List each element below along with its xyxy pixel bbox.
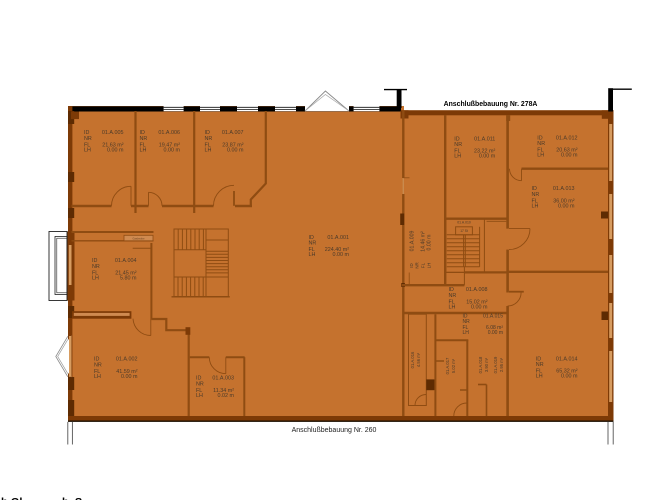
svg-text:01.A.009: 01.A.009 [410,231,416,252]
svg-text:0.00 m: 0.00 m [164,147,181,153]
svg-text:Anschlußbebauung Nr. 260: Anschlußbebauung Nr. 260 [292,427,377,434]
svg-text:NR: NR [536,362,544,368]
svg-text:LH: LH [309,252,316,258]
svg-text:LH: LH [427,263,432,269]
svg-text:NR: NR [205,136,213,142]
svg-text:LH: LH [205,147,212,153]
svg-text:01.A.008: 01.A.008 [466,287,488,293]
svg-text:NR: NR [309,241,317,247]
svg-text:0.00 m: 0.00 m [561,374,578,380]
svg-text:b. S: b. S [62,497,82,500]
svg-text:0.00 m: 0.00 m [561,153,578,159]
svg-text:LH: LH [537,153,544,159]
svg-text:0.00 m: 0.00 m [427,235,433,251]
svg-text:4.56 m²: 4.56 m² [416,352,421,367]
svg-text:LH: LH [140,147,147,153]
svg-text:01.A.019: 01.A.019 [493,356,498,373]
svg-text:0.00 m: 0.00 m [479,154,496,160]
svg-text:Garderobe: Garderobe [133,237,146,240]
svg-text:LH: LH [532,203,539,209]
svg-text:01.A.006: 01.A.006 [158,130,180,136]
svg-text:01.A.015: 01.A.015 [483,314,503,320]
svg-text:h.Gl.: h.Gl. [1,497,25,500]
svg-text:01.A.017: 01.A.017 [445,357,450,374]
svg-text:0.00 m: 0.00 m [121,374,138,380]
svg-text:0.00 m: 0.00 m [471,304,488,310]
svg-text:NR: NR [94,362,102,368]
svg-text:NR: NR [537,141,545,147]
svg-text:01.A.011: 01.A.011 [474,136,495,142]
svg-text:2.95 m²: 2.95 m² [499,357,504,372]
svg-text:LH: LH [84,147,91,153]
svg-text:NR: NR [463,319,471,325]
svg-text:3.90 m²: 3.90 m² [484,357,489,372]
svg-text:01.A.018: 01.A.018 [478,356,483,373]
svg-text:NR: NR [140,136,148,142]
svg-text:LH: LH [449,304,456,310]
svg-text:01.A.013: 01.A.013 [553,186,575,192]
svg-text:NR: NR [454,142,462,148]
svg-text:LH: LH [536,374,543,380]
svg-text:17 St: 17 St [460,229,468,233]
svg-text:FL: FL [421,262,426,268]
svg-text:01.A.007: 01.A.007 [222,130,244,136]
svg-text:LH: LH [463,330,470,336]
svg-text:01.A.002: 01.A.002 [116,357,138,363]
svg-text:NR: NR [449,293,457,299]
svg-text:NR: NR [532,192,540,198]
svg-text:01.A.003: 01.A.003 [212,376,234,382]
svg-text:LH: LH [196,393,203,399]
svg-text:0.00 m: 0.00 m [488,330,503,336]
svg-text:NR: NR [92,264,100,270]
svg-text:01.A.001: 01.A.001 [327,235,349,241]
svg-text:LH: LH [92,275,99,281]
svg-text:01.A.010: 01.A.010 [457,221,471,225]
svg-text:0.00 m: 0.00 m [333,252,350,258]
svg-text:5.02 m²: 5.02 m² [451,358,456,373]
svg-text:01.A.014: 01.A.014 [556,356,578,362]
svg-text:NR: NR [196,381,204,387]
svg-text:0.00 m: 0.00 m [227,147,244,153]
svg-text:0.02 m: 0.02 m [218,393,235,399]
svg-text:LH: LH [94,374,101,380]
svg-text:LH: LH [454,154,461,160]
svg-text:ID: ID [409,263,414,267]
svg-text:0.00 m: 0.00 m [107,147,124,153]
svg-text:01.A.016: 01.A.016 [410,351,415,368]
svg-text:NR: NR [415,262,420,268]
svg-text:01.A.005: 01.A.005 [102,130,124,136]
svg-text:NR: NR [84,136,92,142]
svg-text:01.A.012: 01.A.012 [556,135,578,141]
svg-text:0.00 m: 0.00 m [558,203,575,209]
svg-text:01.A.004: 01.A.004 [115,258,137,264]
svg-text:Anschlußbebauung Nr. 278A: Anschlußbebauung Nr. 278A [444,101,538,108]
svg-text:5.80 m: 5.80 m [120,275,137,281]
